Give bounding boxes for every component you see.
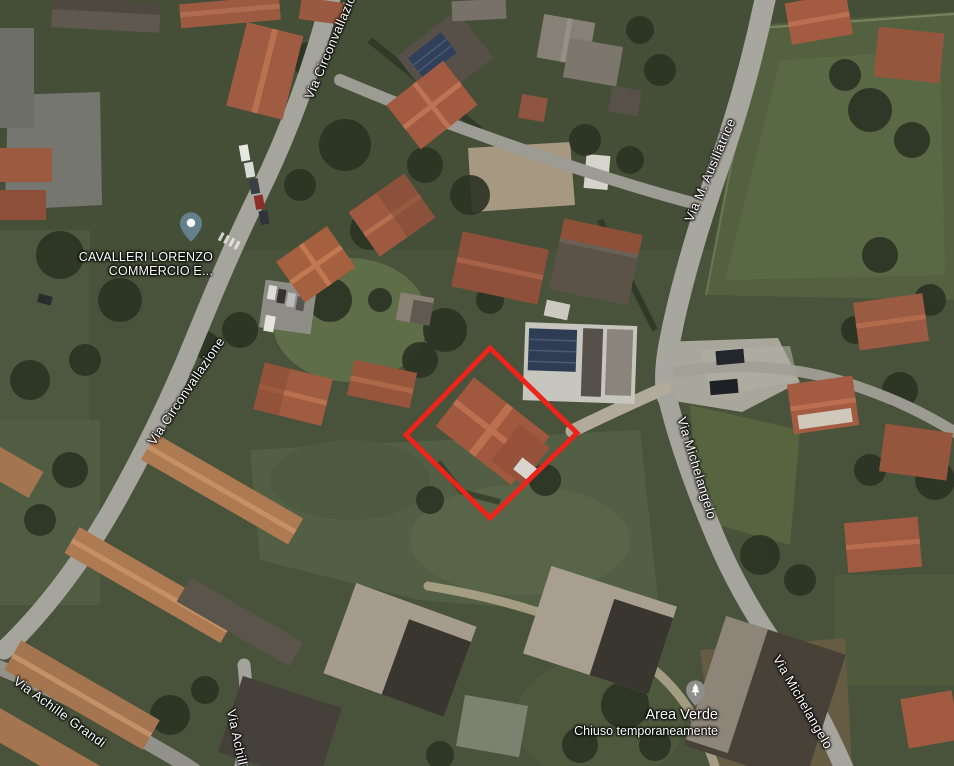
satellite-imagery (0, 0, 954, 766)
solar-panel-building (523, 322, 638, 404)
poi-name-line1: CAVALLERI LORENZO (53, 251, 213, 265)
poi-cavalleri-lorenzo[interactable]: CAVALLERI LORENZO COMMERCIO E... (53, 212, 213, 282)
poi-area-verde-name: Area Verde (478, 707, 718, 724)
poi-area-verde-status: Chiuso temporaneamente (478, 724, 718, 739)
tree-pin-icon (686, 680, 705, 706)
satellite-map-canvas[interactable]: Via Circonvallazione Via Circonvallazion… (0, 0, 954, 766)
poi-area-verde[interactable]: Area Verde Chiuso temporaneamente (478, 680, 718, 766)
poi-name-line2: COMMERCIO E... (53, 265, 213, 279)
poi-pin-icon (180, 212, 202, 242)
